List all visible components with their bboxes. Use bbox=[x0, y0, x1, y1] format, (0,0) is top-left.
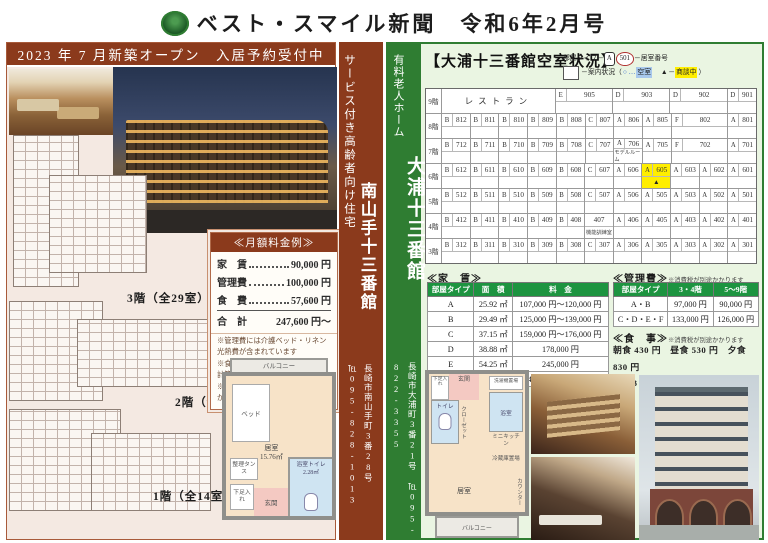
right-vertical-strip: 有料老人ホーム 大浦十三番館 長崎市大浦町3番21号 ℡095-822-3355 bbox=[388, 44, 421, 538]
room-cell: A501 bbox=[728, 189, 756, 213]
room-number: 408 bbox=[568, 214, 585, 226]
room-cell: B610 bbox=[499, 164, 528, 188]
room-cell: E905 bbox=[556, 89, 613, 113]
room-cell: B308 bbox=[557, 239, 586, 263]
room-type: C bbox=[585, 189, 596, 201]
room-cell: B511 bbox=[471, 189, 500, 213]
unit-plan-left: バルコニー ベッド 居室 15.76㎡ 整理タンス 下足入れ 玄関 浴室トイレ … bbox=[222, 358, 336, 520]
bed-area: ベッド bbox=[232, 384, 270, 442]
room-status bbox=[700, 227, 728, 238]
room-status bbox=[614, 177, 642, 188]
room-status bbox=[471, 127, 499, 138]
room-number: 805 bbox=[654, 114, 671, 126]
room-status bbox=[528, 202, 556, 213]
room-type: B bbox=[528, 189, 539, 201]
room-number: 903 bbox=[624, 89, 669, 101]
room-type: B bbox=[528, 239, 539, 251]
room-status bbox=[585, 252, 613, 263]
room-number: 612 bbox=[453, 164, 470, 176]
room-number: 508 bbox=[568, 189, 585, 201]
unit-room-area: 下足入れ 玄関 洗濯機置場 トイレ 浴室 クローゼット ミニキッチン 冷蔵庫置場… bbox=[425, 370, 529, 516]
table-cell: 126,000 円 bbox=[713, 312, 758, 327]
room-cell-top: D901 bbox=[728, 89, 756, 102]
legend-nego: 商談中 bbox=[675, 67, 697, 79]
floorplan-shape bbox=[49, 175, 147, 273]
legend-dash: ─ bbox=[582, 67, 587, 79]
legend-line-status: ─ 案内状況（ ○ … 空室 ▲ ─ 商談中 ） bbox=[563, 66, 705, 80]
room-cell: A806 bbox=[614, 114, 643, 138]
column-header: 部屋タイプ bbox=[614, 283, 668, 297]
interior-photo bbox=[9, 69, 113, 135]
room-type: B bbox=[557, 214, 568, 226]
room-status bbox=[442, 202, 470, 213]
floor-label: 4階 bbox=[426, 214, 442, 238]
room-number: 707 bbox=[597, 139, 614, 151]
room-cell-top: B508 bbox=[557, 189, 585, 202]
table-cell: 38.88 ㎡ bbox=[474, 342, 513, 357]
legend-cell-icon bbox=[563, 66, 579, 80]
building-base-shape bbox=[650, 489, 753, 525]
room-cell-top: B311 bbox=[471, 239, 499, 252]
entrance-area: 玄関 bbox=[254, 488, 288, 516]
room-cell-top: B411 bbox=[471, 214, 499, 227]
room-type: A bbox=[700, 239, 711, 251]
dots-leader bbox=[249, 284, 284, 286]
room-type: B bbox=[499, 139, 510, 151]
bath-text: 浴室トイレ bbox=[297, 462, 326, 468]
room-cell: C807 bbox=[586, 114, 615, 138]
floor-label: 3階 bbox=[426, 239, 442, 263]
room-cell: F802 bbox=[672, 114, 728, 138]
room-status: 機能訓練室 bbox=[585, 227, 613, 238]
room-status bbox=[728, 252, 756, 263]
room-status bbox=[670, 102, 726, 113]
room-type: B bbox=[471, 239, 482, 251]
room-cell: A301 bbox=[728, 239, 756, 263]
price-row: 家 賃90,000 円 bbox=[217, 256, 331, 271]
floor-label: 9階 bbox=[426, 89, 442, 113]
room-number: 601 bbox=[739, 164, 756, 176]
room-type: A bbox=[642, 239, 653, 251]
room-type: B bbox=[528, 139, 539, 151]
crest-logo-icon bbox=[161, 11, 189, 36]
table-cell: D bbox=[428, 342, 474, 357]
room-number: 305 bbox=[653, 239, 670, 251]
room-type: B bbox=[557, 239, 568, 251]
room-status bbox=[642, 252, 670, 263]
room-type: B bbox=[442, 114, 453, 126]
room-cell-top: B412 bbox=[442, 214, 470, 227]
room-status bbox=[528, 152, 556, 163]
room-cell-top: B711 bbox=[471, 139, 499, 152]
room-type: A bbox=[728, 239, 739, 251]
table-cell: 159,000 円～176,000 円 bbox=[512, 327, 608, 342]
room-number: 710 bbox=[510, 139, 527, 151]
room-cell-top: C507 bbox=[585, 189, 613, 202]
room-number: 309 bbox=[539, 239, 556, 251]
room-type: A bbox=[671, 214, 682, 226]
room-type: C bbox=[585, 239, 596, 251]
room-status bbox=[528, 127, 556, 138]
room-status: モデルルーム bbox=[614, 149, 642, 163]
room-cell-top: A306 bbox=[614, 239, 642, 252]
kitchen-label: ミニキッチン bbox=[491, 434, 521, 447]
room-type: A bbox=[728, 189, 739, 201]
room-number: 410 bbox=[510, 214, 527, 226]
room-cell-top: A603 bbox=[671, 164, 699, 177]
room-status bbox=[728, 127, 756, 138]
room-type: B bbox=[499, 189, 510, 201]
room-type: B bbox=[471, 164, 482, 176]
left-address: 長崎市南山手町3番28号 bbox=[363, 364, 373, 483]
fridge-label: 冷蔵庫置場 bbox=[491, 456, 521, 463]
room-status bbox=[585, 202, 613, 213]
room-type: B bbox=[442, 239, 453, 251]
room-number: 808 bbox=[568, 114, 585, 126]
room-number: 609 bbox=[539, 164, 556, 176]
room-number: 512 bbox=[453, 189, 470, 201]
room-type: F bbox=[672, 114, 683, 126]
price-note: ※管理費には介護ベッド・リネン 光熱費が含まれています bbox=[217, 336, 331, 357]
room-number: 809 bbox=[539, 114, 556, 126]
room-type: B bbox=[471, 139, 482, 151]
room-status bbox=[499, 252, 527, 263]
room-cell-top: F802 bbox=[672, 114, 727, 127]
room-cell: B409 bbox=[528, 214, 557, 238]
price-label: 管理費 bbox=[217, 274, 247, 289]
lobby-photo bbox=[531, 374, 635, 454]
room-cell-top: A401 bbox=[728, 214, 756, 227]
table-cell: 107,000 円～120,000 円 bbox=[512, 297, 608, 312]
room-cell-top: A602 bbox=[700, 164, 728, 177]
room-cell-top: A502 bbox=[700, 189, 728, 202]
table-cell: 125,000 円～139,000 円 bbox=[512, 312, 608, 327]
room-cell-top: A402 bbox=[700, 214, 728, 227]
room-cell: B410 bbox=[499, 214, 528, 238]
room-cell-top: A706 bbox=[614, 139, 642, 149]
room-number: 401 bbox=[739, 214, 756, 226]
table-row: A・B97,000 円90,000 円 bbox=[614, 297, 759, 312]
price-label: 合 計 bbox=[217, 313, 247, 328]
room-cell: A302 bbox=[700, 239, 729, 263]
room-status bbox=[557, 127, 585, 138]
room-type: A bbox=[614, 164, 625, 176]
room-cell: レストラン bbox=[442, 89, 556, 113]
price-value: 57,600 円 bbox=[291, 292, 331, 307]
room-cell: A401 bbox=[728, 214, 756, 238]
room-type: A bbox=[614, 239, 625, 251]
room-type: A bbox=[642, 214, 653, 226]
newspaper-title: ベスト・スマイル新聞 令和6年2月号 bbox=[197, 8, 608, 38]
room-number: 302 bbox=[711, 239, 728, 251]
room-number: 706 bbox=[625, 139, 642, 148]
tansu-area: 整理タンス bbox=[230, 458, 258, 480]
room-number: 501 bbox=[739, 189, 756, 201]
room-cell: B712 bbox=[442, 139, 471, 163]
table-cell: A・B bbox=[614, 297, 668, 312]
right-address-vertical: 長崎市大浦町3番21号 ℡095-822-3355 bbox=[388, 362, 420, 538]
room-cell: C707 bbox=[586, 139, 615, 163]
room-cell: A706モデルルーム bbox=[614, 139, 643, 163]
vacancy-floor-row: 3階B312B311B310B309B308C307A306A305A303A3… bbox=[426, 239, 756, 263]
vacancy-floor-row: 9階レストランE905D903D902D901 bbox=[426, 89, 756, 114]
room-type: B bbox=[528, 164, 539, 176]
room-label: 居室 15.76㎡ bbox=[260, 444, 283, 462]
room-cell-top: B608 bbox=[557, 164, 585, 177]
legend-dash: ─ bbox=[598, 53, 603, 65]
price-value: 100,000 円 bbox=[286, 274, 331, 289]
table-row: C・D・E・F133,000 円126,000 円 bbox=[614, 312, 759, 327]
vacancy-floor-row: 5階B512B511B510B509B508C507A506A505A503A5… bbox=[426, 189, 756, 214]
vacant-circle-icon: ○ … bbox=[623, 67, 636, 79]
room-number: 308 bbox=[568, 239, 585, 251]
room-number: 605 bbox=[653, 164, 670, 176]
left-tel: ℡095-828-1013 bbox=[347, 364, 357, 506]
room-number: 511 bbox=[482, 189, 499, 201]
table-cell: C bbox=[428, 327, 474, 342]
room-type: B bbox=[557, 189, 568, 201]
room-status bbox=[442, 127, 470, 138]
room-status bbox=[614, 252, 642, 263]
room-number: 801 bbox=[739, 114, 756, 126]
room-type: B bbox=[442, 214, 453, 226]
room-cell-top: B612 bbox=[442, 164, 470, 177]
left-section: 2023 年 7 月新築オープン 入居予約受付中 3階（全29室） 2階（全29… bbox=[6, 42, 384, 540]
room-number: 701 bbox=[739, 139, 756, 151]
room-number: 606 bbox=[625, 164, 642, 176]
room-cell: F702 bbox=[672, 139, 728, 163]
room-cell-top: A405 bbox=[642, 214, 670, 227]
price-value: 247,600 円～ bbox=[276, 313, 331, 328]
column-header: 3・4階 bbox=[668, 283, 713, 297]
unit-room-area: ベッド 居室 15.76㎡ 整理タンス 下足入れ 玄関 浴室トイレ 2.28㎡ bbox=[222, 372, 336, 520]
price-label: 食 費 bbox=[217, 292, 247, 307]
room-cell-top: B312 bbox=[442, 239, 470, 252]
room-cell: B808 bbox=[557, 114, 586, 138]
room-status bbox=[700, 202, 728, 213]
room-status bbox=[671, 227, 699, 238]
room-cell: A602 bbox=[700, 164, 729, 188]
right-category-vertical: 有料老人ホーム bbox=[390, 54, 406, 138]
floorplan-3f bbox=[9, 135, 149, 297]
room-cell: B611 bbox=[471, 164, 500, 188]
room-cell: A402 bbox=[700, 214, 729, 238]
room-number: 306 bbox=[625, 239, 642, 251]
price-rows: 家 賃90,000 円管理費100,000 円食 費57,600 円合 計247… bbox=[211, 252, 337, 333]
room-type: D bbox=[728, 89, 739, 101]
room-type: A bbox=[614, 114, 625, 126]
room-cell: D901 bbox=[728, 89, 756, 113]
table-cell: A bbox=[428, 297, 474, 312]
room-cell: A505 bbox=[642, 189, 671, 213]
room-number: 405 bbox=[653, 214, 670, 226]
floor-label: 8階 bbox=[426, 114, 442, 138]
column-header: 料 金 bbox=[512, 283, 608, 297]
room-cell: C607 bbox=[585, 164, 614, 188]
building-facade-shape bbox=[655, 387, 749, 498]
room-cell: A603 bbox=[671, 164, 700, 188]
room-status bbox=[499, 127, 527, 138]
room-type: A bbox=[643, 114, 654, 126]
vacancy-legend: 部屋タイプ ─ A 501 ─ 居室番号 ─ 案内状況（ ○ … 空室 ▲ ─ … bbox=[563, 52, 705, 80]
room-type: A bbox=[614, 139, 625, 148]
room-cell: A306 bbox=[614, 239, 643, 263]
vacancy-floor-row: 8階B812B811B810B809B808C807A806A805F802A8… bbox=[426, 114, 756, 139]
price-value: 90,000 円 bbox=[291, 256, 331, 271]
room-cell: B608 bbox=[557, 164, 586, 188]
room-status bbox=[642, 227, 670, 238]
room-status bbox=[614, 227, 642, 238]
flyer-page: ベスト・スマイル新聞 令和6年2月号 2023 年 7 月新築オープン 入居予約… bbox=[0, 0, 768, 543]
room-status bbox=[499, 227, 527, 238]
room-cell-top: A705 bbox=[643, 139, 671, 152]
vacancy-floor-row: 6階B612B611B610B609B608C607A606A605▲A603A… bbox=[426, 164, 756, 189]
room-number: 607 bbox=[596, 164, 613, 176]
room-cell-top: A403 bbox=[671, 214, 699, 227]
room-type: B bbox=[442, 164, 453, 176]
room-cell-top: B512 bbox=[442, 189, 470, 202]
room-cell-top: B812 bbox=[442, 114, 470, 127]
room-cell: C507 bbox=[585, 189, 614, 213]
floor-label: 6階 bbox=[426, 164, 442, 188]
room-type: B bbox=[557, 114, 568, 126]
room-status bbox=[499, 202, 527, 213]
floor-label: 7階 bbox=[426, 139, 442, 163]
room-cell-top: B611 bbox=[471, 164, 499, 177]
kanri-table: 部屋タイプ3・4階5～9階A・B97,000 円90,000 円C・D・E・F1… bbox=[613, 282, 759, 327]
right-content: 【大浦十三番館空室状況】 部屋タイプ ─ A 501 ─ 居室番号 ─ 案内状況… bbox=[421, 44, 762, 538]
room-cell-top: B410 bbox=[499, 214, 527, 227]
room-cell-top: A301 bbox=[728, 239, 756, 252]
room-type: C bbox=[585, 164, 596, 176]
room-type: A bbox=[700, 164, 711, 176]
room-type: B bbox=[557, 139, 568, 151]
legend-vacant: 空室 bbox=[636, 67, 652, 79]
room-status bbox=[499, 152, 527, 163]
room-area-text: 15.76㎡ bbox=[260, 453, 283, 461]
room-type: B bbox=[442, 189, 453, 201]
column-header: 部屋タイプ bbox=[428, 283, 474, 297]
room-type: A bbox=[700, 214, 711, 226]
room-cell-top: B511 bbox=[471, 189, 499, 202]
room-status bbox=[442, 177, 470, 188]
room-type: B bbox=[471, 189, 482, 201]
room-type: D bbox=[670, 89, 681, 101]
room-type: A bbox=[671, 164, 682, 176]
left-name-vertical: 南山手十三番館 bbox=[355, 182, 379, 312]
unit-plan-right: 下足入れ 玄関 洗濯機置場 トイレ 浴室 クローゼット ミニキッチン 冷蔵庫置場… bbox=[425, 370, 529, 538]
open-banner: 2023 年 7 月新築オープン 入居予約受付中 bbox=[7, 43, 335, 67]
room-status bbox=[557, 252, 585, 263]
room-cell-top: B510 bbox=[499, 189, 527, 202]
room-cell: A606 bbox=[614, 164, 643, 188]
room-cell: A305 bbox=[642, 239, 671, 263]
room-type: A bbox=[728, 214, 739, 226]
room-type: A bbox=[614, 214, 625, 226]
room-cell-top: A302 bbox=[700, 239, 728, 252]
building-exterior-photo bbox=[639, 375, 759, 540]
room-cell-top: A605 bbox=[642, 164, 670, 177]
room-cell-top: A601 bbox=[728, 164, 756, 177]
room-number: 406 bbox=[625, 214, 642, 226]
room-type: B bbox=[442, 139, 453, 151]
dots-leader bbox=[249, 266, 289, 268]
room-status bbox=[528, 177, 556, 188]
table-row: C37.15 ㎡159,000 円～176,000 円 bbox=[428, 327, 609, 342]
room-number: 802 bbox=[683, 114, 727, 126]
legend-sample-type: A bbox=[604, 52, 615, 66]
room-number: 705 bbox=[654, 139, 671, 151]
room-status bbox=[557, 177, 585, 188]
room-type: A bbox=[728, 114, 739, 126]
room-status bbox=[442, 152, 470, 163]
room-type: A bbox=[643, 139, 654, 151]
room-type: B bbox=[499, 214, 510, 226]
balcony-area: バルコニー bbox=[435, 516, 519, 538]
room-status bbox=[672, 127, 727, 138]
room-cell: A303 bbox=[671, 239, 700, 263]
vacancy-floor-row: 7階B712B711B710B709B708C707A706モデルルームA705… bbox=[426, 139, 756, 164]
room-status bbox=[557, 152, 585, 163]
price-row: 食 費57,600 円 bbox=[217, 292, 331, 307]
room-cell-top: A501 bbox=[728, 189, 756, 202]
room-status bbox=[614, 202, 642, 213]
room-status bbox=[671, 177, 699, 188]
bath-toilet-area: 浴室トイレ 2.28㎡ bbox=[288, 457, 332, 516]
room-cell: B310 bbox=[499, 239, 528, 263]
room-cell-top: F702 bbox=[672, 139, 727, 152]
room-type: F bbox=[672, 139, 683, 151]
room-type: A bbox=[614, 189, 625, 201]
left-content: 2023 年 7 月新築オープン 入居予約受付中 3階（全29室） 2階（全29… bbox=[6, 42, 336, 540]
room-number: 503 bbox=[682, 189, 699, 201]
room-cell: A701 bbox=[728, 139, 756, 163]
room-cell-top: A303 bbox=[671, 239, 699, 252]
room-cell: B509 bbox=[528, 189, 557, 213]
entrance-area: 玄関 bbox=[449, 374, 479, 400]
room-cell-top: A503 bbox=[671, 189, 699, 202]
room-status bbox=[528, 252, 556, 263]
room-cell: B408 bbox=[557, 214, 586, 238]
room-cell: B309 bbox=[528, 239, 557, 263]
room-cell: A403 bbox=[671, 214, 700, 238]
room-status bbox=[700, 252, 728, 263]
room-number: 510 bbox=[510, 189, 527, 201]
room-status bbox=[671, 202, 699, 213]
room-status bbox=[728, 227, 756, 238]
room-number: 307 bbox=[596, 239, 613, 251]
room-type: B bbox=[499, 239, 510, 251]
room-type: A bbox=[728, 139, 739, 151]
table-cell: 29.49 ㎡ bbox=[474, 312, 513, 327]
room-cell: A406 bbox=[614, 214, 643, 238]
meals-line1: 朝食 430 円 昼食 530 円 夕食 830 円 bbox=[613, 342, 762, 375]
room-cell: B709 bbox=[528, 139, 557, 163]
room-number: 902 bbox=[681, 89, 726, 101]
room-cell-top: B811 bbox=[471, 114, 499, 127]
room-type: B bbox=[499, 164, 510, 176]
room-status bbox=[586, 152, 614, 163]
price-box-title: ≪月額料金例≫ bbox=[211, 233, 337, 252]
toilet-area: トイレ bbox=[431, 400, 459, 444]
room-number: 905 bbox=[567, 89, 612, 101]
room-number: 310 bbox=[510, 239, 527, 251]
laundry-area: 洗濯機置場 bbox=[489, 376, 523, 390]
room-number: 602 bbox=[711, 164, 728, 176]
table-cell: 37.15 ㎡ bbox=[474, 327, 513, 342]
price-label: 家 賃 bbox=[217, 256, 247, 271]
room-status bbox=[499, 177, 527, 188]
